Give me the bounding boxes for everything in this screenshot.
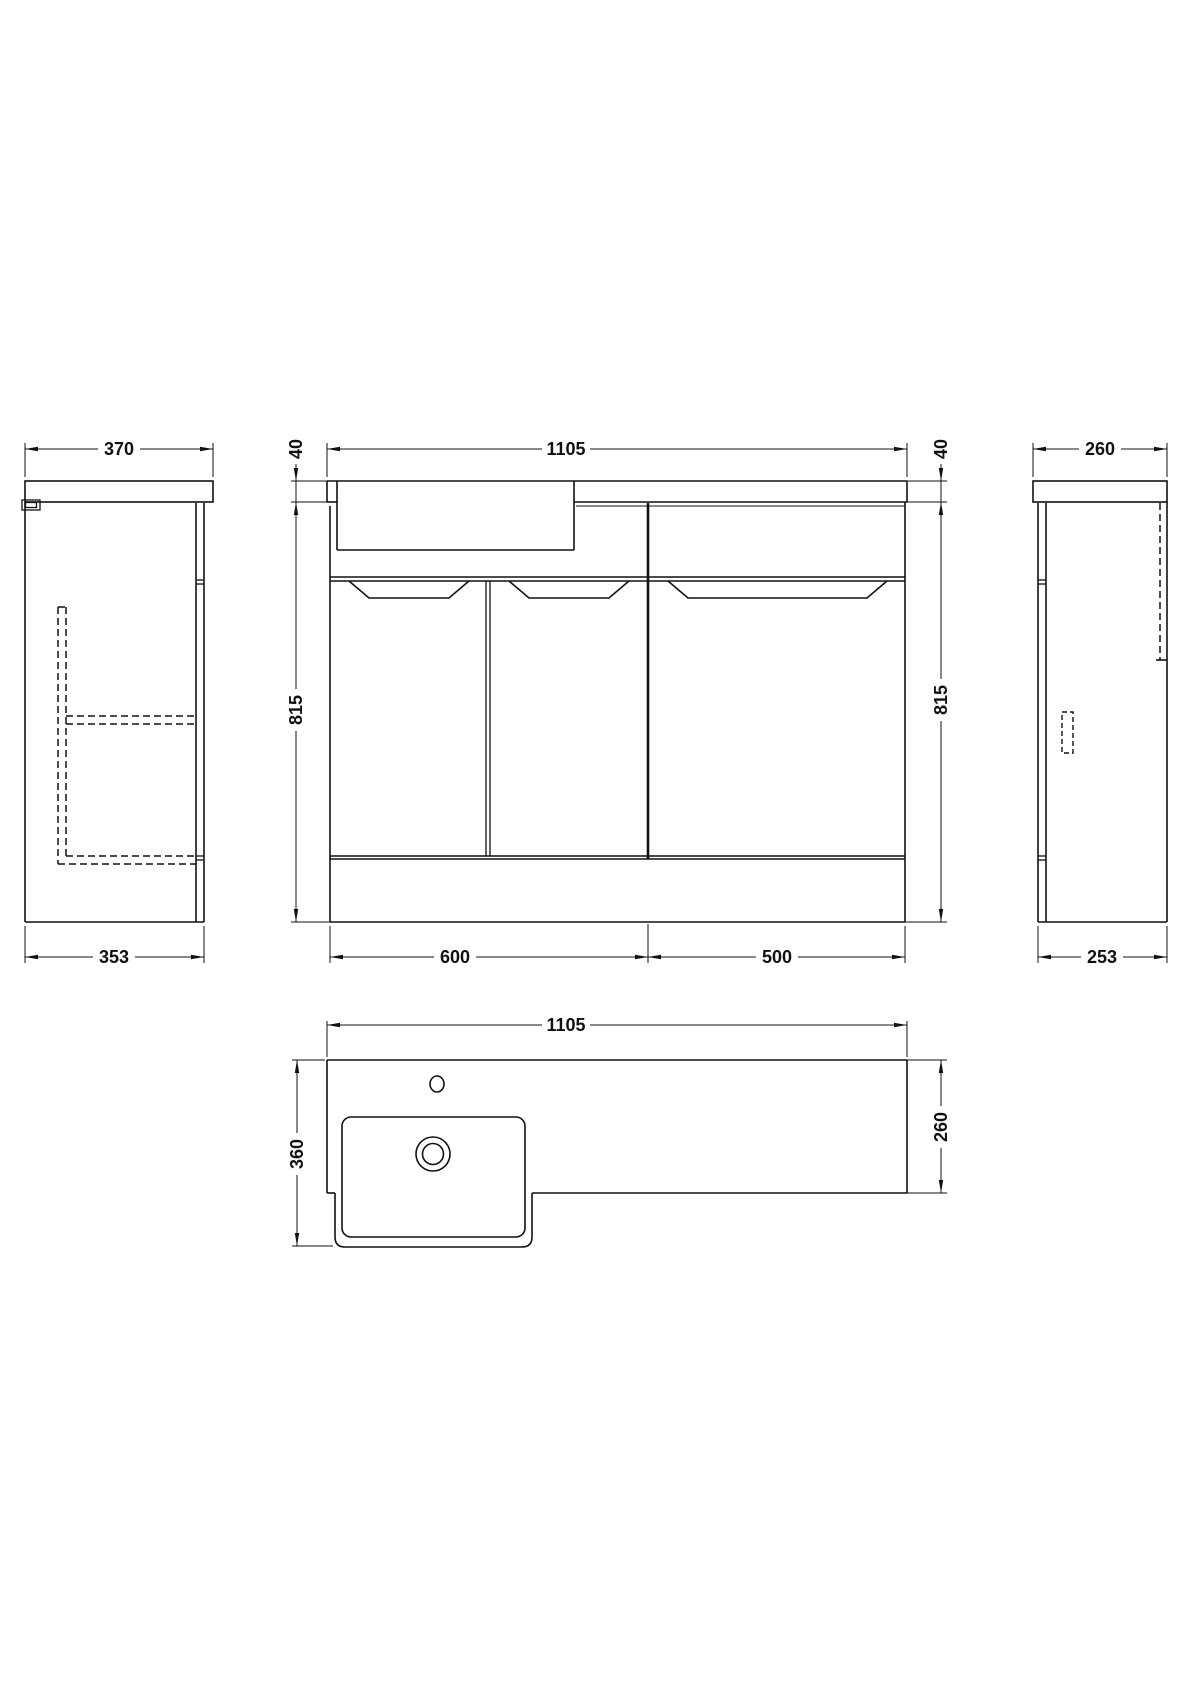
- arrowhead: [939, 909, 943, 922]
- dim-815-left: 815: [286, 689, 306, 731]
- front-view: 1105 40 40 815 815 600 500: [286, 434, 951, 967]
- door-handle-recess: [509, 581, 629, 598]
- arrowhead: [327, 447, 340, 451]
- arrowhead: [1038, 955, 1051, 959]
- dim-label-counter-thickness: 40: [931, 439, 951, 459]
- arrowhead: [939, 1180, 943, 1193]
- dim-label-counter-width: 1105: [546, 439, 585, 459]
- arrowhead: [648, 955, 661, 959]
- dim-label-cabinet-depth: 253: [1087, 947, 1117, 967]
- counter-plan-outline: [327, 1060, 907, 1193]
- dim-260-side: 260: [1079, 439, 1121, 459]
- counter-profile: [25, 481, 213, 502]
- hidden-shelf-lines: [58, 607, 196, 864]
- dim-label-cabinet-height: 815: [931, 685, 951, 715]
- dim-label-counter-width: 370: [104, 439, 134, 459]
- dim-370: 370: [98, 439, 140, 459]
- hidden-fixing-bracket: [1062, 712, 1073, 753]
- dim-360: 360: [287, 1133, 307, 1175]
- arrowhead: [939, 502, 943, 515]
- waste-drain-inner: [423, 1144, 444, 1165]
- vanity-unit-technical-drawing: 370 353: [0, 0, 1190, 1684]
- dim-label-vanity-width: 600: [440, 947, 470, 967]
- waste-drain-outer: [416, 1137, 450, 1171]
- dim-253: 253: [1081, 947, 1123, 967]
- right-side-view: 260 253: [1033, 439, 1167, 967]
- arrowhead: [330, 955, 343, 959]
- arrowhead: [295, 1233, 299, 1246]
- dim-label-counter-depth: 360: [287, 1139, 307, 1169]
- arrowhead: [939, 468, 943, 481]
- dim-label-cabinet-height: 815: [286, 695, 306, 725]
- arrowhead: [25, 447, 38, 451]
- dim-1105-plan: 1105: [542, 1015, 590, 1035]
- counter-profile: [1033, 481, 1167, 502]
- tap-hole: [430, 1076, 444, 1092]
- basin-outer-outline: [335, 1193, 532, 1247]
- arrowhead: [939, 1060, 943, 1073]
- arrowhead: [327, 1023, 340, 1027]
- dim-label-counter-width: 260: [1085, 439, 1115, 459]
- arrowhead: [635, 955, 648, 959]
- arrowhead: [191, 955, 204, 959]
- dim-500: 500: [756, 947, 798, 967]
- dim-260-plan: 260: [931, 1106, 951, 1148]
- arrowhead: [894, 1023, 907, 1027]
- dim-label-wc-depth: 260: [931, 1112, 951, 1142]
- technical-drawing-page: 370 353: [0, 0, 1190, 1684]
- arrowhead: [25, 955, 38, 959]
- arrowhead: [294, 909, 298, 922]
- arrowhead: [294, 502, 298, 515]
- plan-view: 1105 360 260: [287, 1015, 951, 1247]
- dim-label-wc-width: 500: [762, 947, 792, 967]
- arrowhead: [894, 447, 907, 451]
- door-handle-recess: [668, 581, 887, 598]
- arrowhead: [1154, 447, 1167, 451]
- dim-label-counter-width: 1105: [546, 1015, 585, 1035]
- arrowhead: [1033, 447, 1046, 451]
- door-handle-recess: [349, 581, 469, 598]
- arrowhead: [200, 447, 213, 451]
- dim-40-right: 40: [931, 434, 951, 464]
- arrowhead: [892, 955, 905, 959]
- arrowhead: [295, 1060, 299, 1073]
- dim-40-left: 40: [286, 434, 306, 464]
- arrowhead: [1154, 955, 1167, 959]
- dim-600: 600: [434, 947, 476, 967]
- basin-front-profile: [337, 481, 574, 550]
- dim-label-cabinet-depth: 353: [99, 947, 129, 967]
- dim-353: 353: [93, 947, 135, 967]
- dim-1105-front: 1105: [542, 439, 590, 459]
- dim-label-counter-thickness: 40: [286, 439, 306, 459]
- left-side-view: 370 353: [22, 439, 213, 967]
- basin-rim-outline: [342, 1117, 525, 1237]
- arrowhead: [294, 468, 298, 481]
- dim-815-right: 815: [931, 679, 951, 721]
